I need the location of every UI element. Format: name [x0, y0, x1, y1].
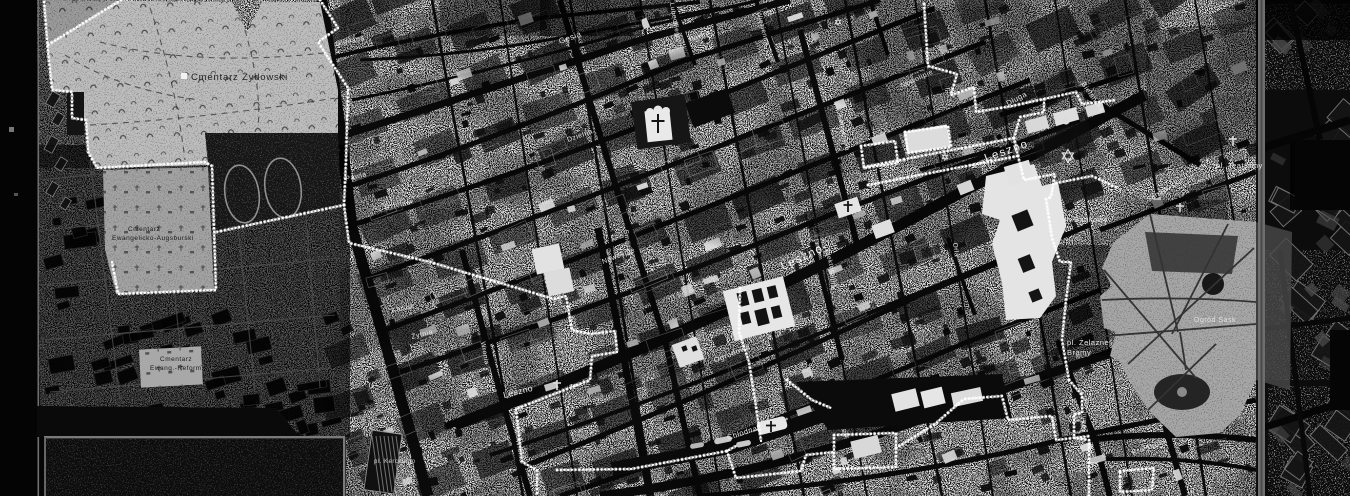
svg-text:pl. Kercelego: pl. Kercelego: [374, 459, 416, 465]
svg-text:Ogród Sask: Ogród Sask: [1194, 317, 1236, 324]
svg-text:pl. Teatralny: pl. Teatralny: [1216, 161, 1263, 170]
svg-text:pl. Żelaznej: pl. Żelaznej: [1067, 338, 1111, 347]
svg-text:Cmentarz: Cmentarz: [160, 356, 192, 363]
svg-text:pl. Bankowy: pl. Bankowy: [1062, 215, 1108, 224]
svg-text:Ewangelicko-Augsburski: Ewangelicko-Augsburski: [112, 235, 194, 242]
svg-text:Cmentarz: Cmentarz: [128, 226, 160, 233]
svg-text:Bramy: Bramy: [1067, 348, 1091, 357]
svg-text:Cmentarz Żydowski: Cmentarz Żydowski: [191, 72, 288, 83]
svg-text:Ewang.-Reform.: Ewang.-Reform.: [150, 365, 204, 372]
